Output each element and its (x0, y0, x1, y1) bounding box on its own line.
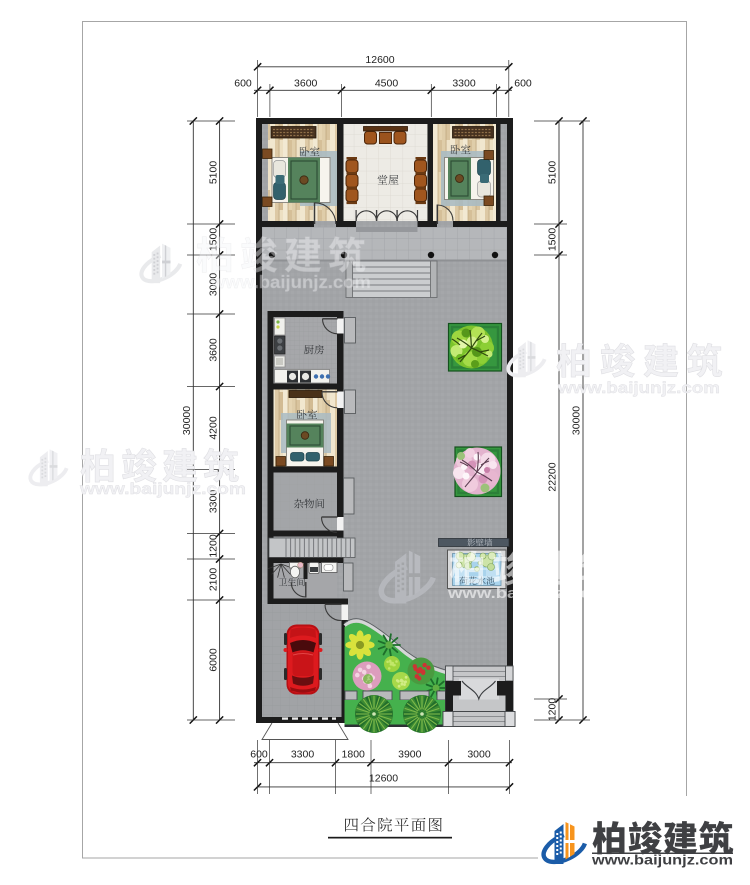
svg-text:1200: 1200 (208, 534, 220, 558)
svg-text:www.baijunjz.com: www.baijunjz.com (79, 481, 246, 498)
svg-text:12600: 12600 (369, 773, 398, 785)
svg-text:www.baijunjz.com: www.baijunjz.com (447, 585, 608, 602)
svg-text:30000: 30000 (571, 406, 583, 435)
svg-text:1800: 1800 (342, 749, 366, 761)
svg-text:3000: 3000 (467, 749, 491, 761)
svg-text:3600: 3600 (294, 78, 318, 90)
svg-text:12600: 12600 (365, 54, 394, 66)
svg-text:4500: 4500 (375, 78, 399, 90)
svg-text:4200: 4200 (208, 416, 220, 440)
svg-text:www.baijunjz.com: www.baijunjz.com (210, 272, 371, 292)
svg-text:www.baijunjz.com: www.baijunjz.com (591, 853, 733, 868)
svg-text:600: 600 (234, 78, 252, 90)
svg-text:30000: 30000 (181, 406, 193, 435)
svg-text:2100: 2100 (208, 568, 220, 592)
svg-text:5100: 5100 (208, 161, 220, 185)
svg-text:600: 600 (514, 78, 532, 90)
svg-text:www.baijunjz.com: www.baijunjz.com (557, 380, 720, 397)
svg-text:22200: 22200 (547, 462, 559, 491)
svg-text:6000: 6000 (208, 648, 220, 672)
svg-text:5100: 5100 (547, 161, 559, 185)
svg-text:3300: 3300 (291, 749, 315, 761)
svg-text:3300: 3300 (452, 78, 476, 90)
svg-text:600: 600 (250, 749, 268, 761)
svg-text:1500: 1500 (547, 228, 559, 252)
svg-text:3900: 3900 (398, 749, 422, 761)
svg-text:1200: 1200 (547, 698, 559, 722)
svg-text:3600: 3600 (208, 338, 220, 362)
